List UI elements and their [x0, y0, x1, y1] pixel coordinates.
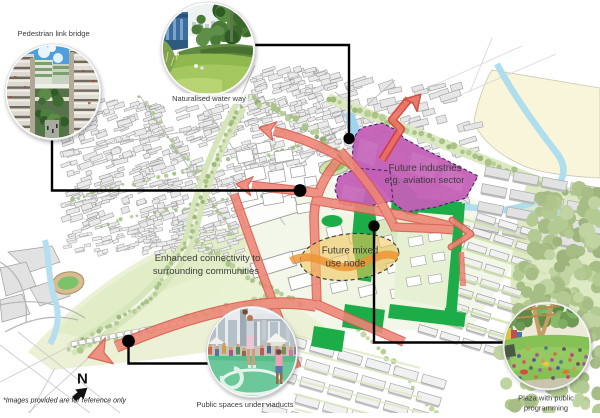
svg-text:Naturalised water way: Naturalised water way: [172, 94, 246, 103]
svg-text:Future mixed: Future mixed: [322, 246, 379, 257]
svg-text:use node: use node: [326, 259, 366, 270]
svg-text:Plaza with public: Plaza with public: [518, 394, 574, 403]
svg-text:programming: programming: [524, 404, 568, 413]
svg-text:Future industries: Future industries: [389, 163, 462, 174]
svg-text:surrounding communities: surrounding communities: [153, 266, 259, 277]
svg-text:Pedestrian link bridge: Pedestrian link bridge: [18, 29, 90, 38]
svg-text:N: N: [77, 371, 88, 388]
svg-text:e.g. aviation sector: e.g. aviation sector: [385, 175, 465, 186]
svg-text:*Images provided are for refer: *Images provided are for reference only: [3, 398, 126, 405]
svg-text:Public spaces under viaducts: Public spaces under viaducts: [196, 400, 293, 409]
svg-text:Enhanced connectivity to: Enhanced connectivity to: [155, 253, 261, 264]
